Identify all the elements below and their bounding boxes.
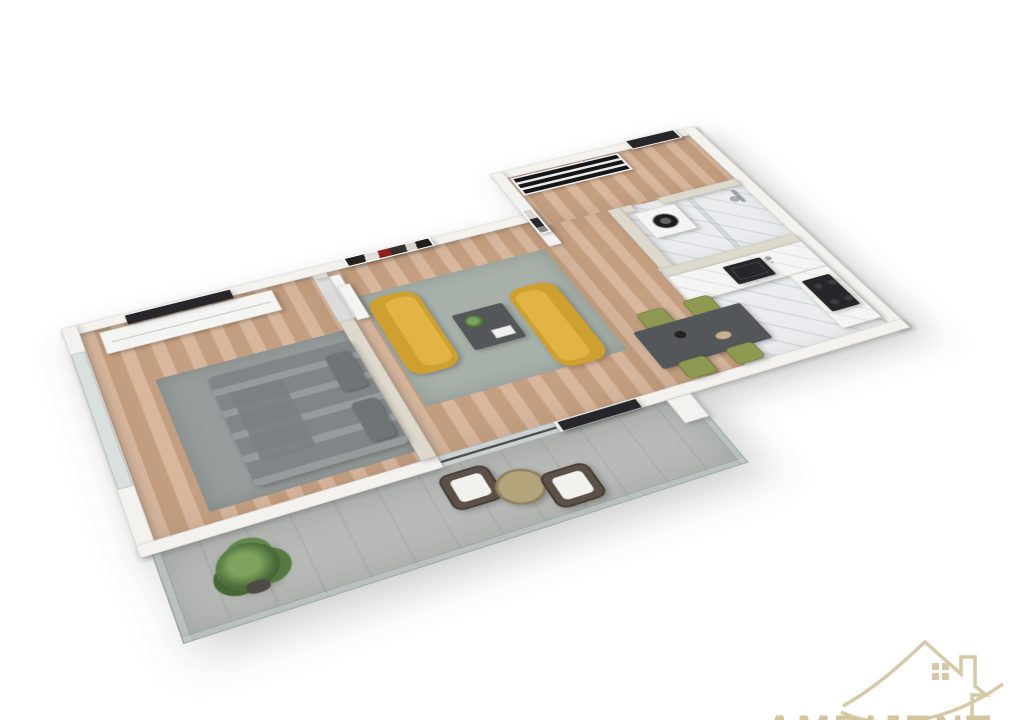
logo-window-squares: [932, 663, 949, 680]
centerpiece-vase: [672, 330, 688, 340]
cooktop-burners: [812, 283, 824, 290]
watermark-text: AMBIJENT: [765, 710, 993, 720]
sink-basin-line: [730, 261, 768, 280]
scene: AMBIJENT: [0, 0, 1023, 720]
bed-throw: [229, 379, 316, 462]
rattan-chair-2-cushion: [550, 470, 595, 501]
watermark: AMBIJENT: [779, 616, 1009, 720]
rattan-chair-1-cushion: [449, 472, 493, 503]
coffee-table-books: [492, 326, 515, 338]
house-logo-icon: [837, 630, 1007, 720]
centerpiece-bowl: [712, 329, 734, 341]
coffee-table-plant: [462, 314, 488, 330]
washer-door: [647, 211, 684, 231]
